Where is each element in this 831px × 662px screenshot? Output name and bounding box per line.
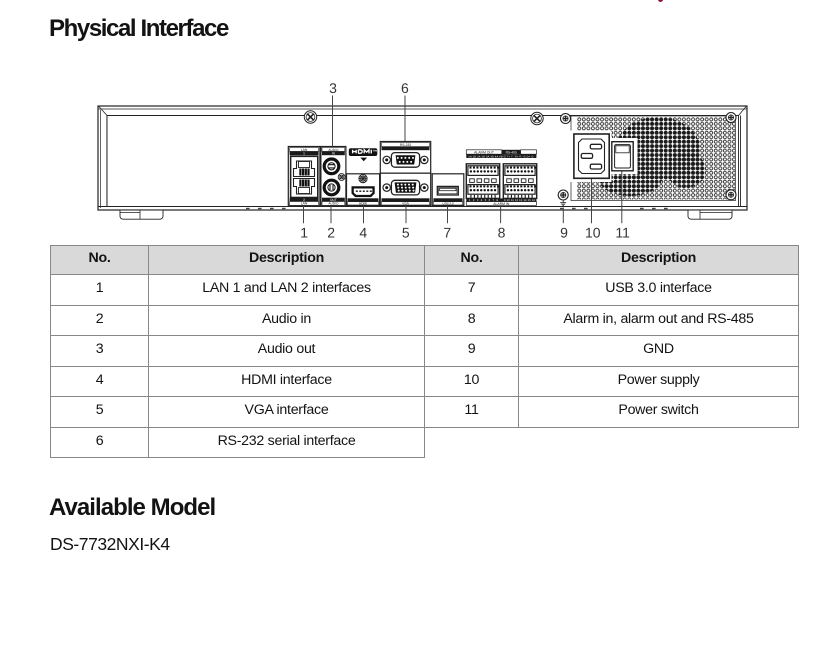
svg-text:11: 11	[615, 225, 630, 241]
svg-text:9: 9	[560, 225, 568, 241]
svg-text:2: 2	[327, 225, 335, 241]
svg-text:6: 6	[401, 80, 409, 96]
svg-text:ALARM IN: ALARM IN	[493, 202, 510, 206]
svg-text:1A 1B 2A 2B 3A 3B 4A 4B G T+: 1A 1B 2A 2B 3A 3B 4A 4B G T+ T- R+ R- G …	[468, 155, 534, 158]
svg-text:10: 10	[585, 225, 601, 241]
svg-text:ALARM OUT: ALARM OUT	[474, 150, 494, 154]
svg-text:USB 3.0: USB 3.0	[442, 202, 454, 206]
svg-text:RS-485: RS-485	[506, 150, 517, 154]
svg-text:1: 1	[300, 225, 308, 241]
svg-text:8: 8	[498, 225, 506, 241]
svg-text:5: 5	[402, 225, 410, 241]
svg-text:7: 7	[443, 225, 451, 241]
svg-text:3: 3	[329, 80, 337, 96]
svg-text:RS-232: RS-232	[400, 143, 412, 147]
svg-text:LAN: LAN	[301, 202, 308, 206]
svg-text:4: 4	[359, 225, 367, 241]
svg-text:VGA: VGA	[402, 202, 410, 206]
svg-text:1: 1	[303, 152, 305, 156]
svg-text:AUDIO: AUDIO	[328, 202, 339, 206]
svg-text:HDMI: HDMI	[359, 202, 367, 206]
